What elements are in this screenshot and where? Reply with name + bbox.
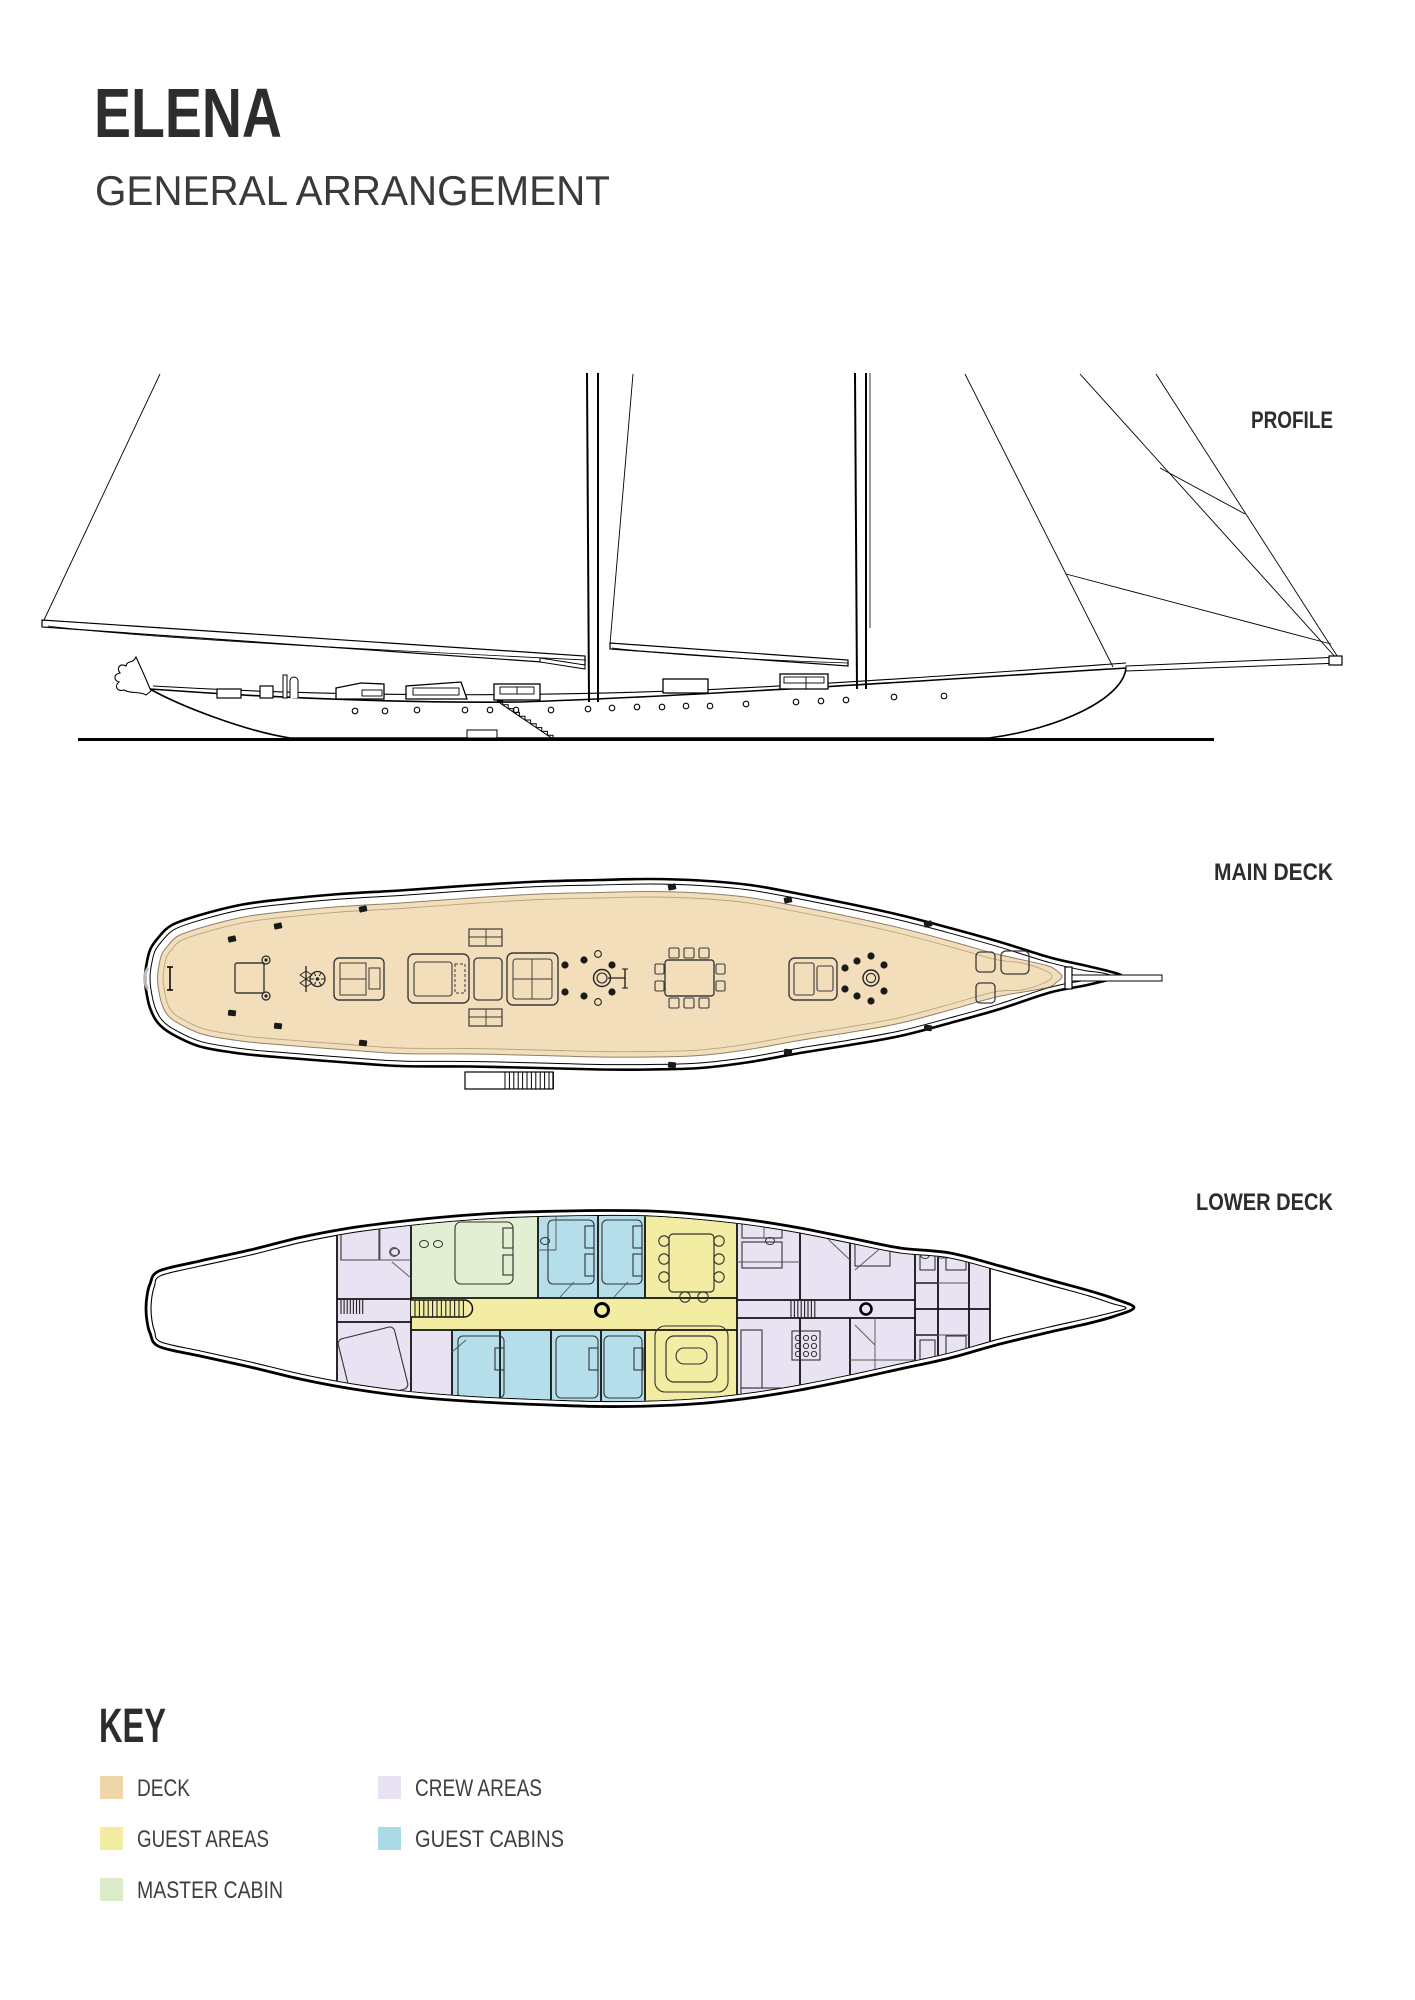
svg-text:GUEST CABINS: GUEST CABINS <box>415 1826 564 1853</box>
svg-text:DECK: DECK <box>137 1775 190 1802</box>
svg-text:LOWER DECK: LOWER DECK <box>1196 1189 1334 1216</box>
svg-text:KEY: KEY <box>99 1700 166 1753</box>
svg-text:GENERAL ARRANGEMENT: GENERAL ARRANGEMENT <box>95 167 610 214</box>
svg-text:MASTER CABIN: MASTER CABIN <box>137 1877 283 1904</box>
svg-text:PROFILE: PROFILE <box>1251 407 1333 434</box>
svg-text:MAIN DECK: MAIN DECK <box>1214 859 1334 886</box>
svg-text:ELENA: ELENA <box>94 74 282 152</box>
svg-text:GUEST AREAS: GUEST AREAS <box>137 1826 269 1853</box>
svg-text:CREW AREAS: CREW AREAS <box>415 1775 542 1802</box>
